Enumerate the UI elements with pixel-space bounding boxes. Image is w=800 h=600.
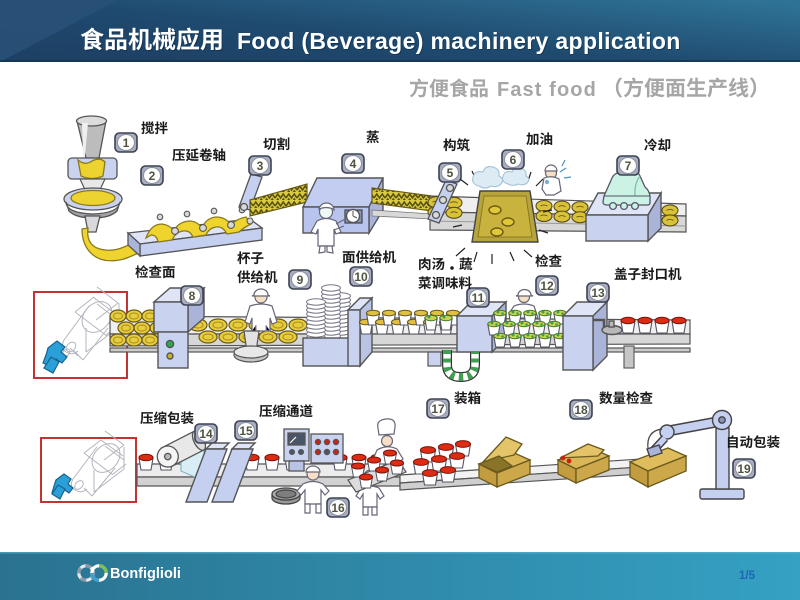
svg-text:Fast food: Fast food	[497, 79, 597, 101]
svg-text:14: 14	[199, 427, 213, 441]
svg-text:Bonfiglioli: Bonfiglioli	[110, 566, 181, 582]
svg-text:15: 15	[239, 424, 253, 438]
svg-text:6: 6	[510, 153, 517, 167]
svg-text:5: 5	[447, 166, 454, 180]
svg-text:1/5: 1/5	[739, 570, 756, 582]
svg-text:Food (Beverage) machinery appl: Food (Beverage) machinery application	[237, 28, 681, 54]
svg-text:19: 19	[737, 462, 751, 476]
svg-text:7: 7	[625, 159, 632, 173]
svg-text:13: 13	[591, 286, 605, 300]
svg-text:3: 3	[257, 159, 264, 173]
svg-text:4: 4	[350, 157, 357, 171]
svg-text:17: 17	[431, 402, 445, 416]
svg-text:16: 16	[331, 501, 345, 515]
svg-text:1: 1	[123, 136, 130, 150]
svg-text:9: 9	[297, 273, 304, 287]
svg-text:2: 2	[149, 169, 156, 183]
svg-text:18: 18	[574, 403, 588, 417]
svg-text:8: 8	[189, 289, 196, 303]
svg-text:12: 12	[540, 279, 554, 293]
svg-text:11: 11	[472, 291, 485, 305]
svg-text:10: 10	[354, 270, 368, 284]
